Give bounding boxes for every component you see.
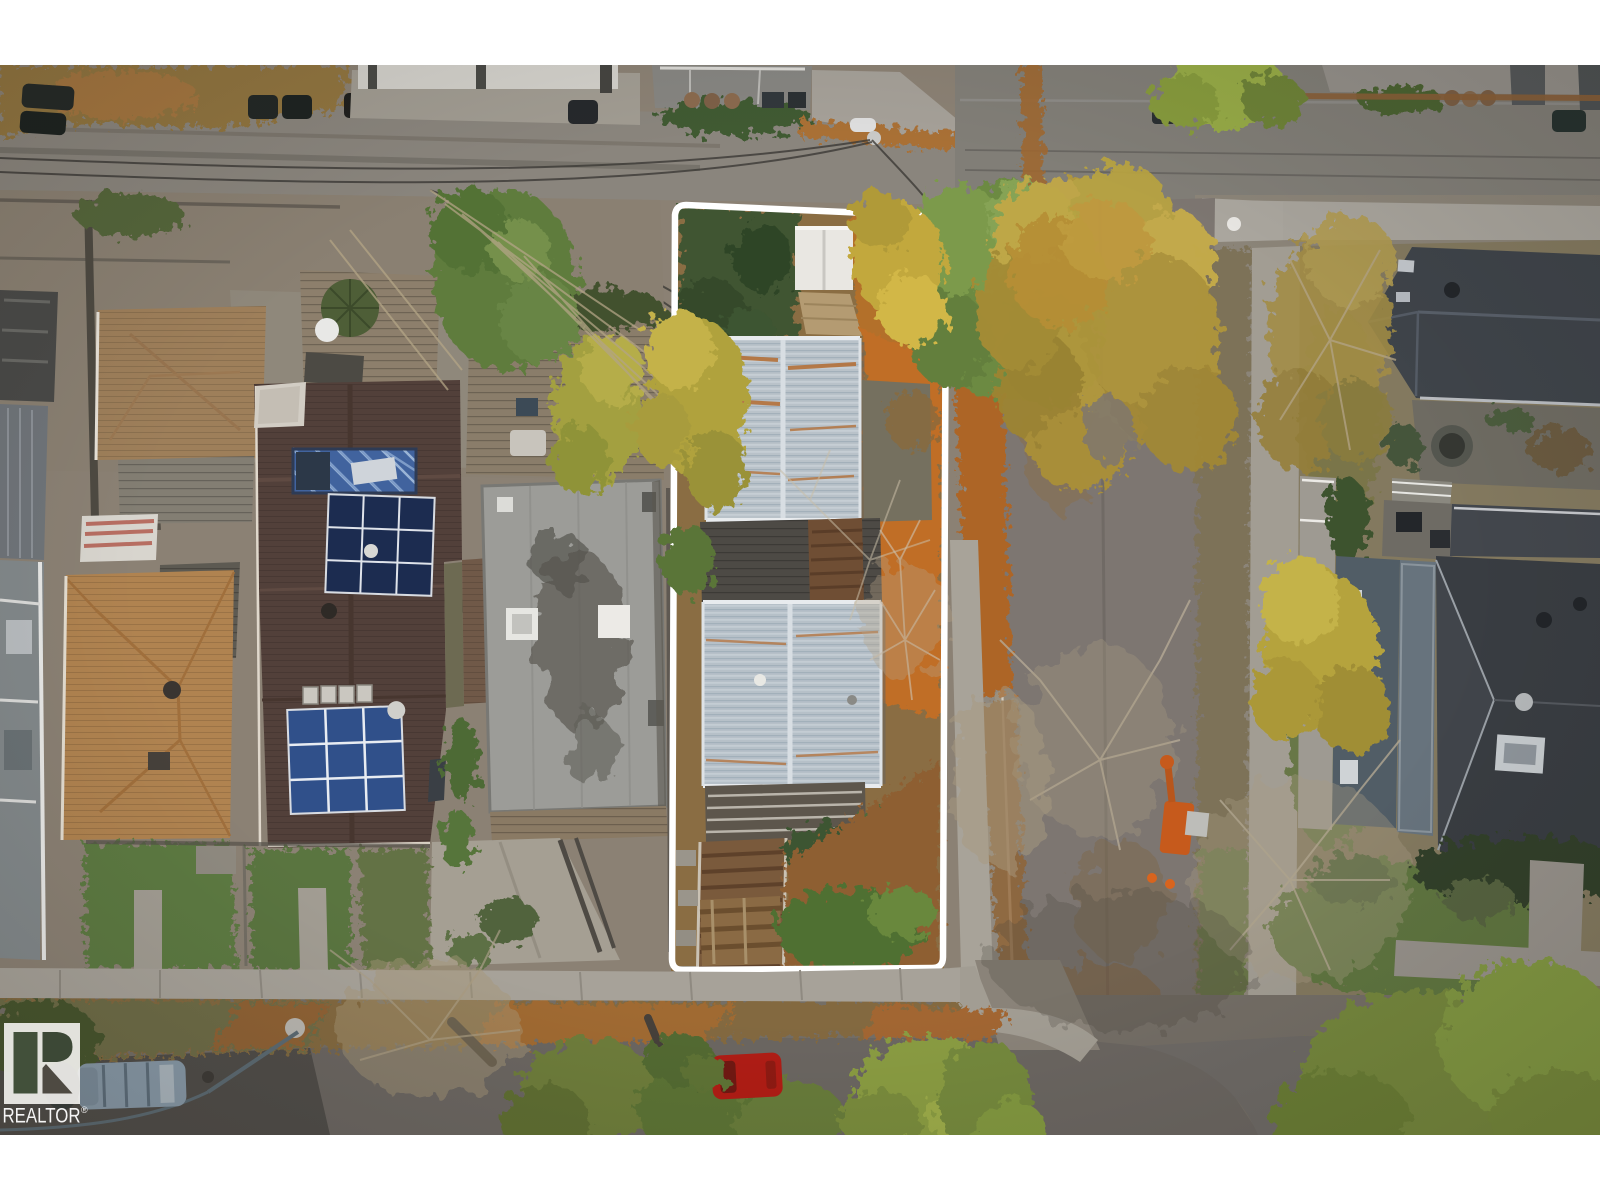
svg-text:REALTOR: REALTOR — [3, 1104, 81, 1128]
svg-text:®: ® — [81, 1105, 88, 1115]
